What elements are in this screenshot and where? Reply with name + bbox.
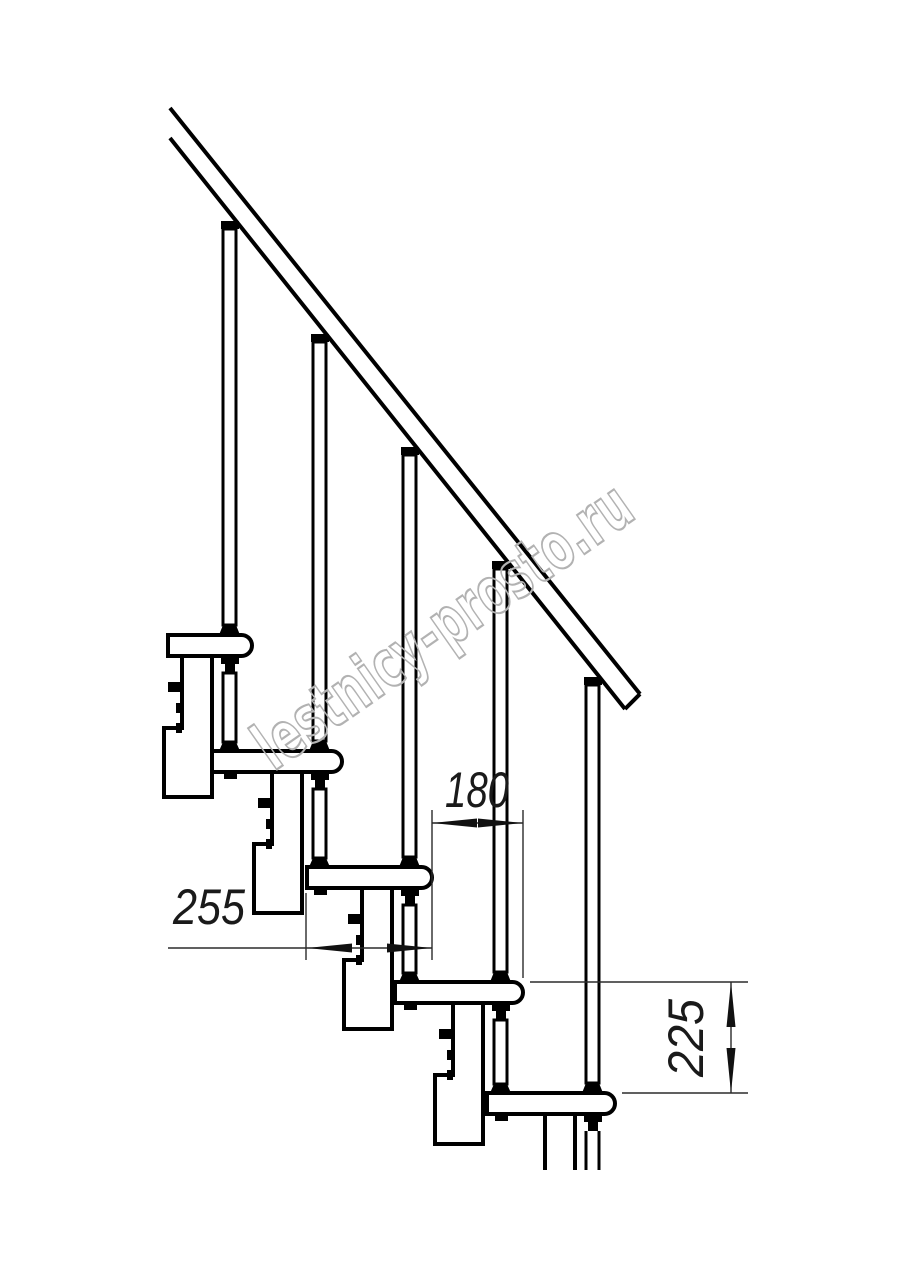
support-module bbox=[435, 1003, 483, 1144]
baluster-tube bbox=[223, 229, 236, 625]
bolt-tab bbox=[176, 723, 182, 733]
arrowhead-left bbox=[307, 944, 352, 953]
under-post bbox=[584, 1114, 602, 1170]
support-module bbox=[254, 772, 302, 913]
dimension-label-rise: 225 bbox=[658, 999, 714, 1078]
post-tube bbox=[223, 673, 236, 742]
bolt-tab bbox=[266, 819, 272, 829]
arrowhead-down bbox=[727, 1048, 736, 1093]
arrowhead-up bbox=[727, 982, 736, 1027]
under-post bbox=[309, 772, 330, 867]
under-post bbox=[399, 888, 420, 982]
under-post bbox=[219, 656, 240, 751]
bolt-tab bbox=[176, 703, 182, 713]
bolt-tab bbox=[266, 839, 272, 849]
post-tube-cut bbox=[586, 1131, 599, 1170]
post-tube bbox=[403, 905, 416, 973]
arrowhead-left bbox=[432, 819, 477, 828]
nut bbox=[224, 772, 237, 779]
nut bbox=[404, 1003, 417, 1010]
post-nut bbox=[588, 1122, 598, 1131]
bolt-tab bbox=[447, 1070, 453, 1080]
bolt-tab bbox=[356, 935, 362, 945]
support-module-cut bbox=[545, 1114, 575, 1170]
bolt-tab bbox=[439, 1029, 453, 1039]
under-post bbox=[490, 1003, 511, 1093]
staircase-technical-drawing: 180 255 225 lestnicy-prosto.ru bbox=[0, 0, 914, 1280]
support-module bbox=[344, 888, 392, 1029]
dimension-rise-225: 225 bbox=[530, 982, 748, 1093]
tread bbox=[487, 1093, 615, 1114]
bolt-tab bbox=[258, 798, 272, 808]
post-tube bbox=[313, 789, 326, 858]
tread bbox=[168, 635, 252, 656]
post-tube bbox=[494, 1020, 507, 1084]
bolt-tab bbox=[356, 955, 362, 965]
baluster-tube bbox=[586, 685, 599, 1083]
dimension-label-depth: 255 bbox=[172, 879, 245, 935]
nut bbox=[314, 888, 327, 895]
nut bbox=[495, 1114, 508, 1121]
dimension-label-run: 180 bbox=[445, 762, 509, 818]
support-module bbox=[164, 656, 212, 797]
bolt-tab bbox=[168, 682, 182, 692]
bolt-tab bbox=[447, 1050, 453, 1060]
baluster bbox=[219, 221, 240, 635]
dimension-run-180: 180 bbox=[432, 762, 523, 978]
baluster bbox=[582, 677, 603, 1093]
bolt-tab bbox=[348, 914, 362, 924]
tread bbox=[395, 982, 523, 1003]
tread bbox=[307, 867, 432, 888]
